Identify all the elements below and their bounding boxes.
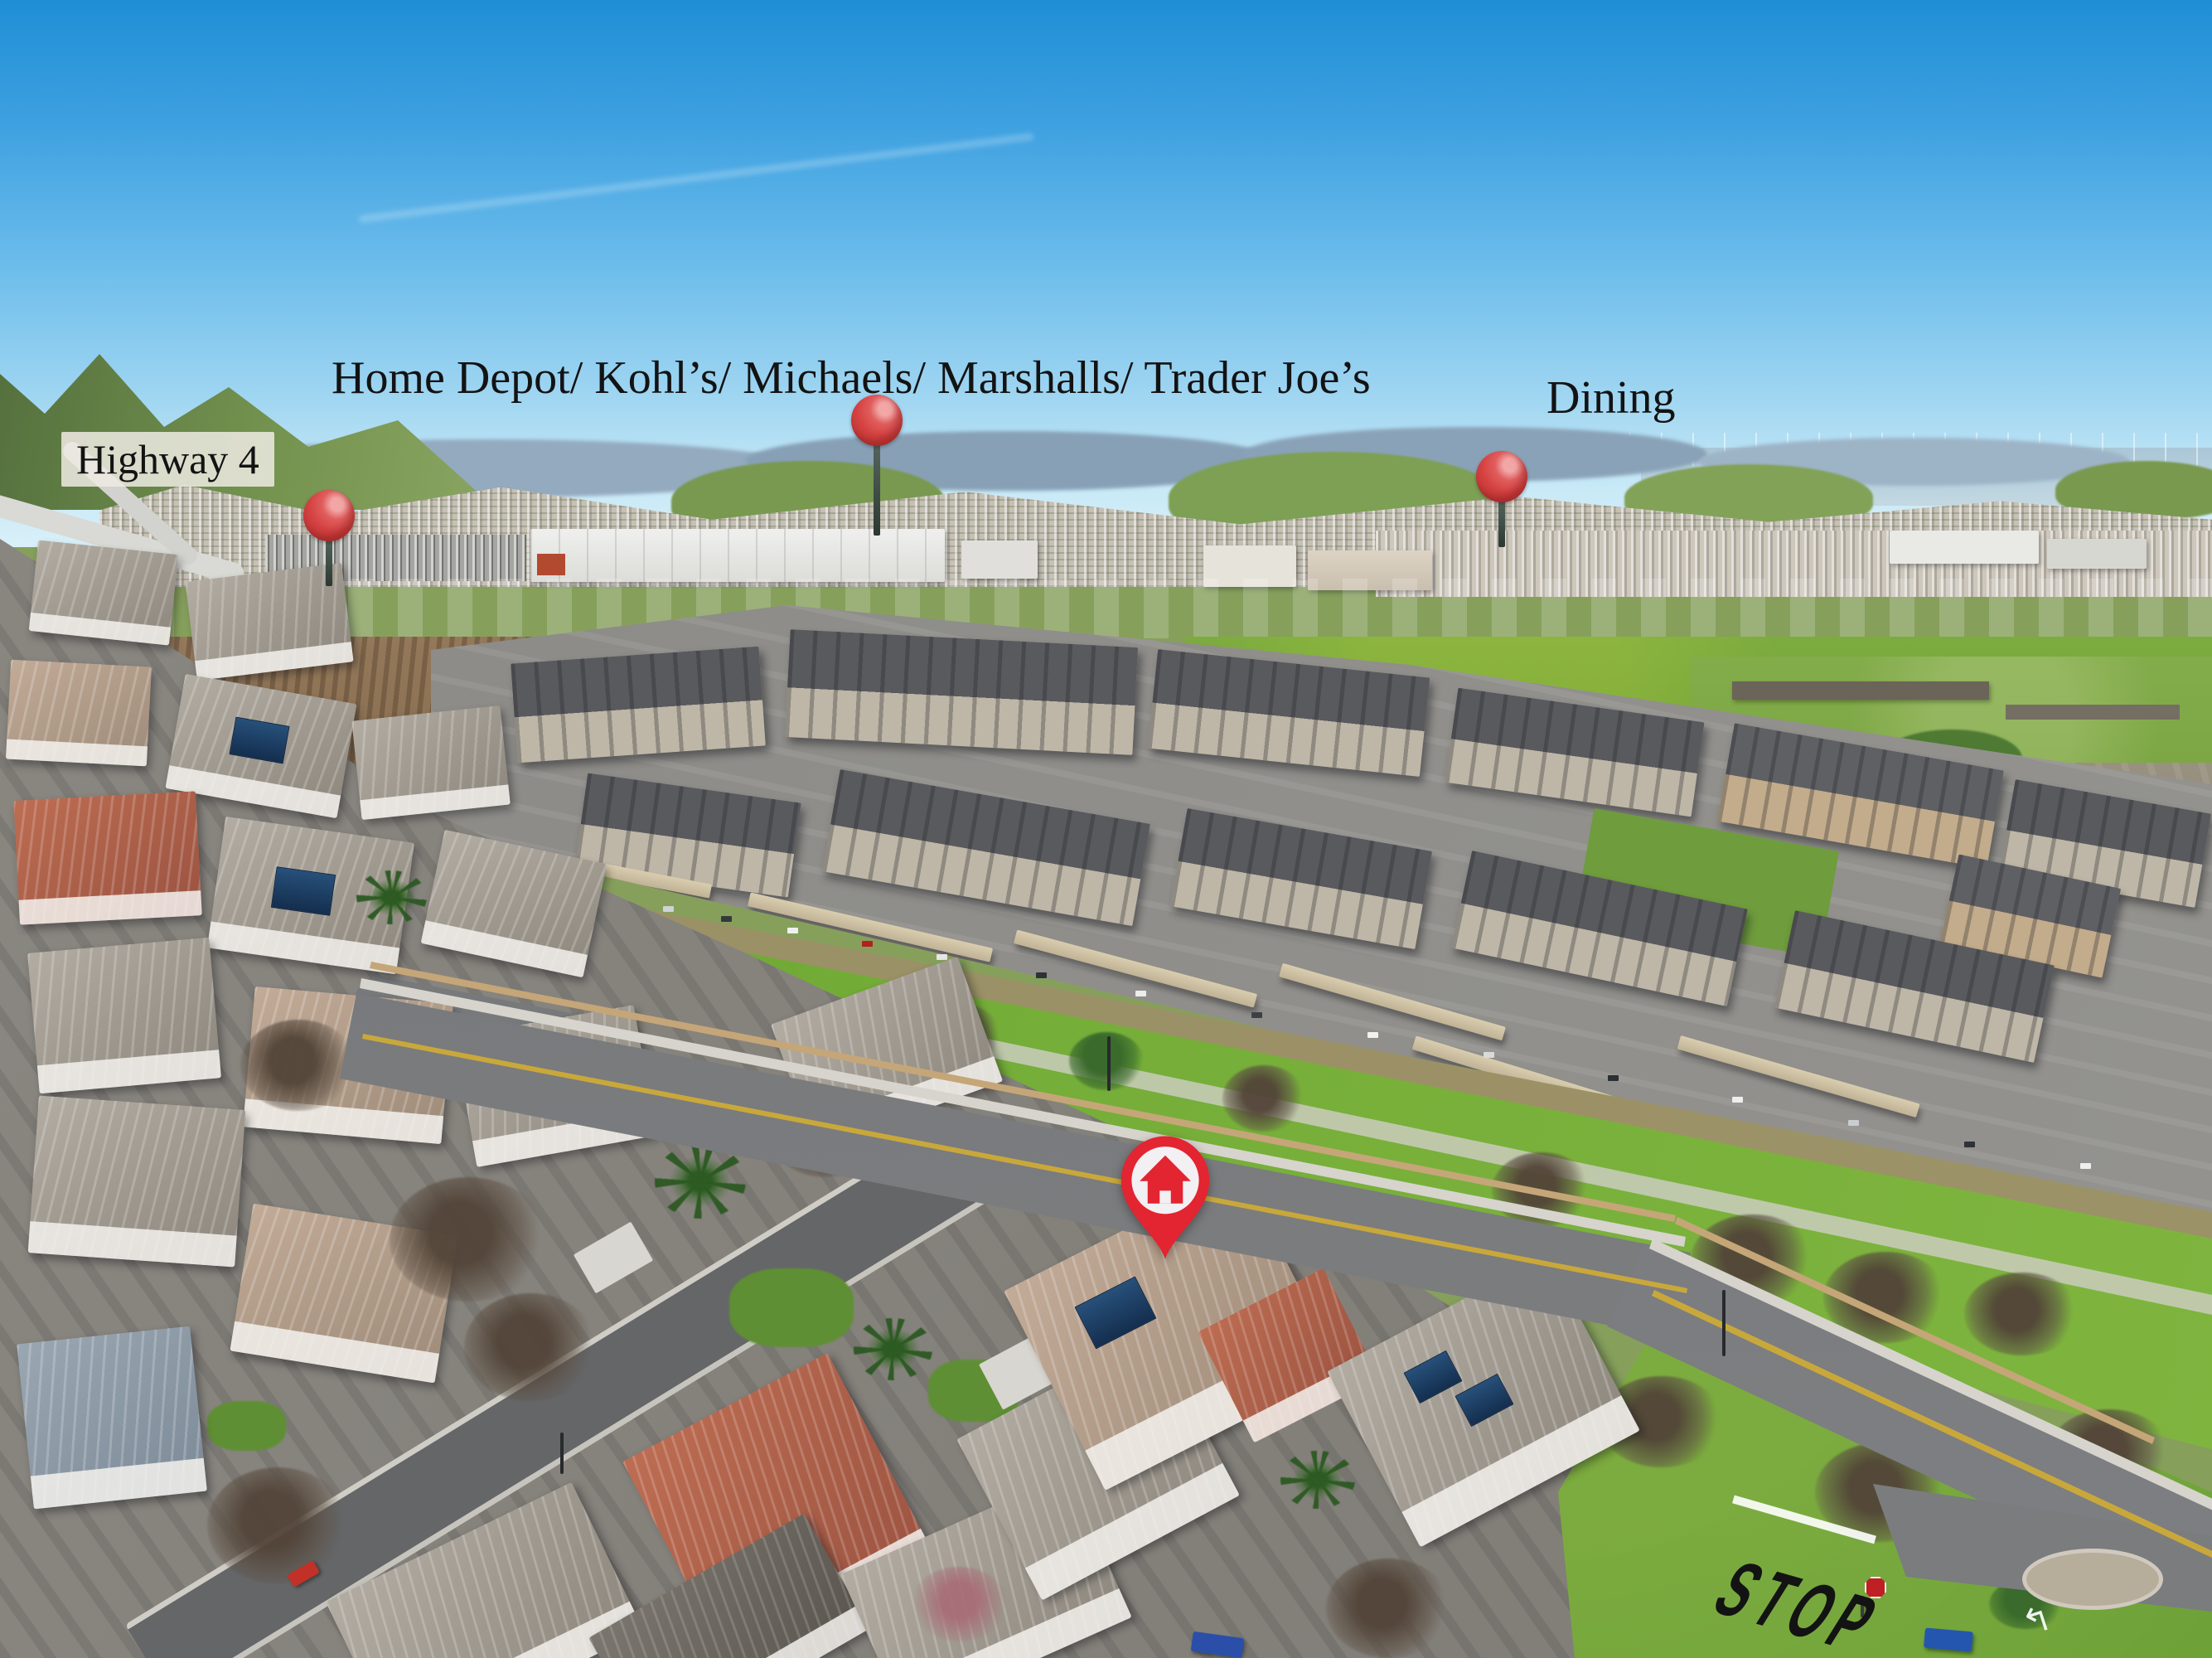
aerial-photo: STOP ↰ Home Depot/ Kohl’s/ Michaels/ Mar… (0, 0, 2212, 1658)
apartment-building (511, 647, 766, 764)
carport (1279, 963, 1506, 1041)
palm-tree (1280, 1451, 1355, 1509)
palm-tree (854, 1318, 932, 1380)
apartment-building (785, 629, 1138, 755)
highway-pin (303, 490, 355, 541)
blossom-tree (912, 1567, 1007, 1641)
bare-tree (240, 1020, 356, 1111)
dining-pin-stem (1498, 499, 1505, 547)
dining-label: Dining (1546, 371, 1676, 424)
dining-pin (1476, 451, 1527, 502)
barn (2006, 705, 2180, 720)
retail-building (961, 541, 1038, 579)
bare-tree (1964, 1273, 2080, 1355)
street-light (560, 1433, 564, 1474)
carport (1677, 1035, 1919, 1117)
bare-tree (390, 1177, 547, 1302)
apartment-building (574, 773, 801, 897)
apartment-building (822, 769, 1150, 926)
bare-tree (1222, 1065, 1305, 1132)
palm-tree (655, 1144, 746, 1219)
tree (1069, 1032, 1144, 1090)
bare-tree (207, 1467, 348, 1583)
barn (1732, 681, 1989, 700)
blue-car (1924, 1628, 1973, 1652)
highway-pin-stem (326, 538, 332, 586)
apartment-building (1148, 649, 1430, 777)
house (17, 1326, 207, 1510)
bare-tree (1326, 1559, 1450, 1658)
house (29, 540, 179, 645)
house (27, 938, 221, 1094)
industrial-building (1890, 531, 2039, 564)
lawn (729, 1268, 854, 1347)
lawn (207, 1401, 286, 1451)
shopping-label: Home Depot/ Kohl’s/ Michaels/ Marshalls/… (332, 351, 1371, 405)
bare-tree (464, 1293, 597, 1401)
house (351, 705, 511, 820)
house (6, 660, 152, 767)
palm-tree (356, 870, 427, 924)
solar-panels (271, 866, 336, 916)
store-sign (537, 554, 565, 575)
apartment-building (1445, 688, 1704, 817)
shopping-pin-stem (874, 443, 880, 536)
street-light (1722, 1290, 1726, 1356)
home-location-marker (1117, 1134, 1213, 1262)
house (13, 791, 202, 924)
street-light (1107, 1036, 1111, 1091)
industrial-building (2047, 539, 2147, 569)
shopping-center-building (530, 529, 945, 582)
house (28, 1096, 246, 1268)
highway-label: Highway 4 (61, 432, 274, 487)
apartment-building (1170, 808, 1432, 949)
